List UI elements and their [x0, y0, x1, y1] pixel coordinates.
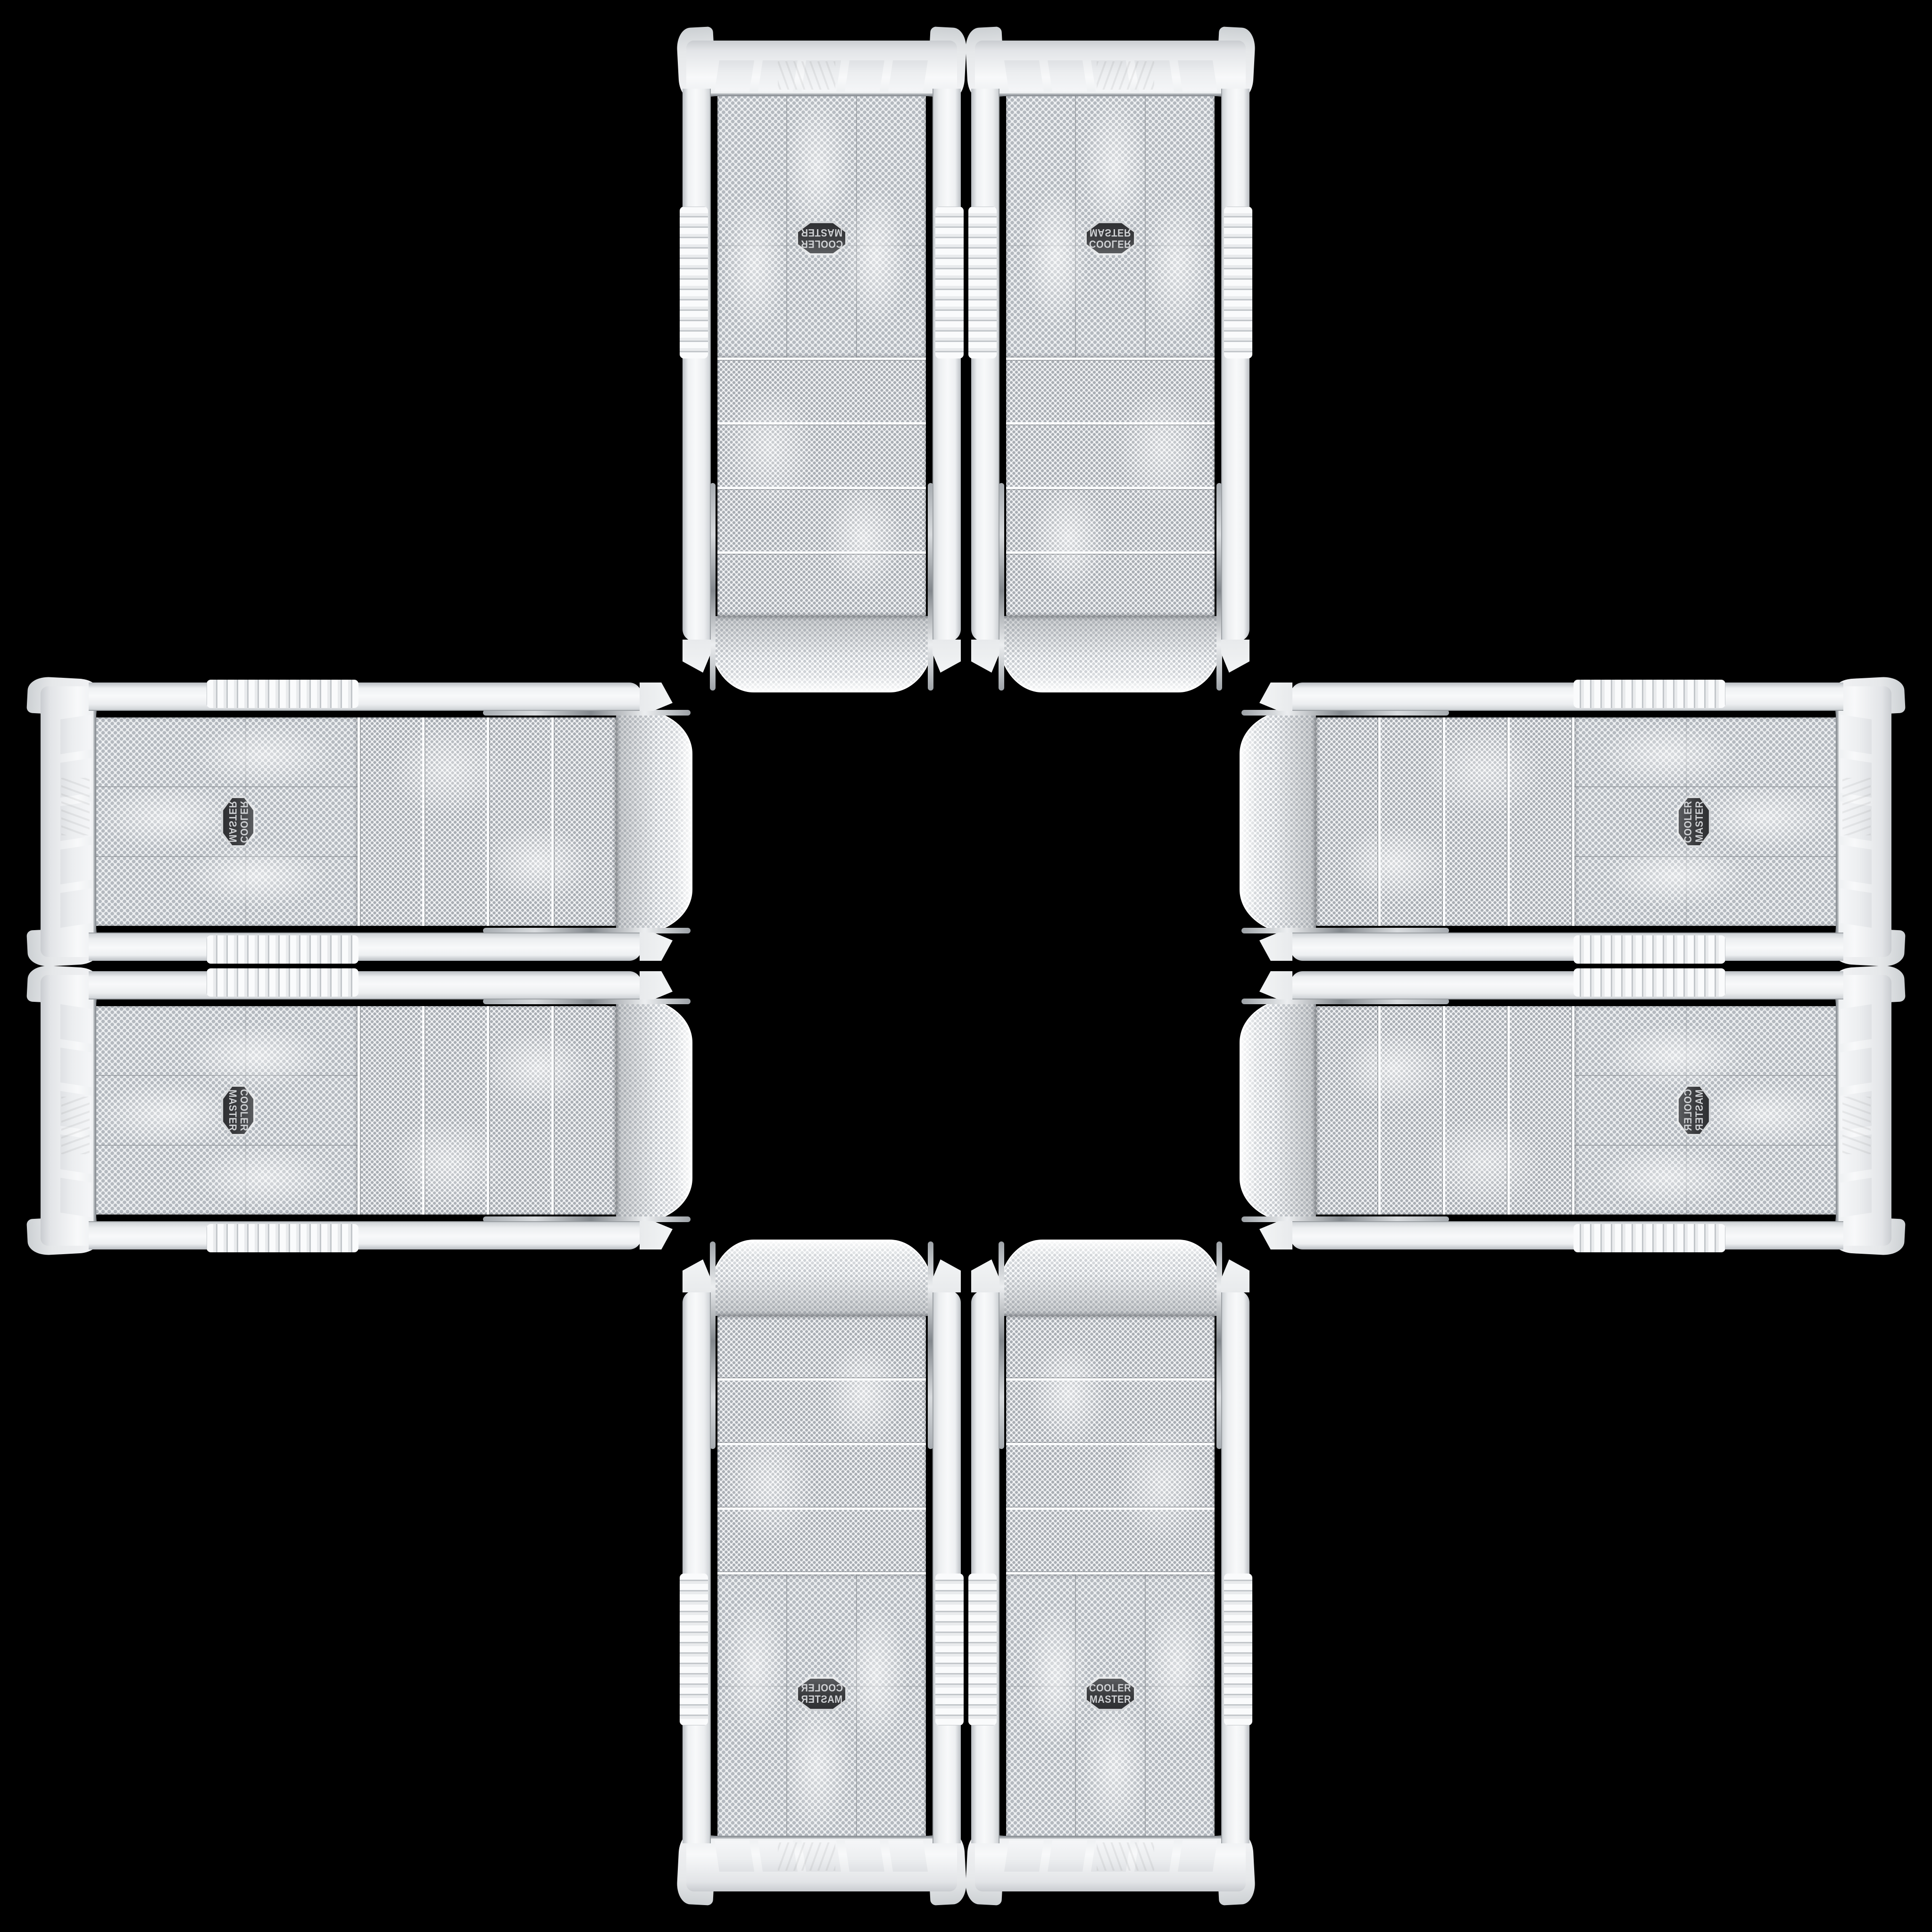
case-rounded-top-mesh-panel — [1240, 998, 1316, 1223]
front-mesh-panel: COOLER MASTER — [717, 1574, 926, 1840]
pc-case-right-top: COOLER MASTER — [1229, 683, 1894, 961]
cap-tab — [60, 715, 92, 754]
cap-tab — [60, 1178, 92, 1217]
badge-text-line1: COOLER — [1682, 800, 1694, 842]
cap-tab — [1004, 1840, 1044, 1872]
pc-case-bottom-left: COOLER MASTER — [683, 1229, 961, 1894]
cooler-master-badge-face: COOLER MASTER — [798, 223, 845, 253]
case-side-rail-left — [971, 1291, 999, 1843]
grip-ribs-right — [1574, 1224, 1725, 1252]
badge-text-line2: MASTER — [227, 1090, 238, 1131]
cap-diagonal-ribs — [1842, 1097, 1871, 1154]
drive-bay-mesh-covers — [717, 1316, 926, 1574]
badge-text-line2: MASTER — [1090, 227, 1131, 238]
cap-tab — [1840, 888, 1872, 928]
cooler-master-badge-face: COOLER MASTER — [1679, 1087, 1709, 1134]
case-end-cap — [686, 41, 957, 93]
cooler-master-badge: COOLER MASTER — [796, 221, 847, 255]
case-side-rail-right — [683, 1291, 711, 1843]
case-side-rail-left — [971, 89, 999, 641]
pc-case-top-right: COOLER MASTER — [971, 38, 1249, 703]
grip-ribs-right — [1224, 1574, 1252, 1725]
cooler-master-badge: COOLER MASTER — [1677, 1085, 1711, 1136]
front-mesh-panel: COOLER MASTER — [1574, 717, 1840, 926]
cap-tab — [60, 888, 92, 928]
case-rounded-top-mesh-panel — [616, 709, 692, 934]
badge-text-line2: MASTER — [1694, 801, 1705, 842]
cap-tab — [845, 1840, 884, 1872]
drive-bay-mesh-covers — [1006, 1316, 1215, 1574]
case-end-cap — [1839, 686, 1891, 957]
cap-tab — [1178, 60, 1217, 92]
case-end-cap — [975, 1839, 1246, 1891]
grip-ribs-left — [968, 1574, 997, 1725]
badge-text-line1: COOLER — [1682, 1089, 1694, 1131]
cap-tab — [715, 1840, 754, 1872]
grip-ribs-right — [1224, 207, 1252, 358]
pc-case-right-bottom: COOLER MASTER — [1229, 971, 1894, 1249]
case-rounded-top-mesh-panel — [709, 1240, 934, 1316]
front-mesh-panel: COOLER MASTER — [92, 717, 358, 926]
grip-ribs-right — [1574, 680, 1725, 708]
front-mesh-panel: COOLER MASTER — [92, 1006, 358, 1215]
cap-tab — [60, 845, 92, 884]
case-side-rail-right — [89, 1221, 641, 1249]
pc-case-left-top: COOLER MASTER — [38, 683, 703, 961]
case-side-rail-right — [1221, 1291, 1249, 1843]
cap-tab — [715, 60, 754, 92]
cap-tab — [888, 60, 928, 92]
case-end-cap — [975, 41, 1246, 93]
cooler-master-badge-face: COOLER MASTER — [1087, 1679, 1134, 1709]
case-end-cap — [686, 1839, 957, 1891]
front-mesh-panel: COOLER MASTER — [1006, 1574, 1215, 1840]
cap-tab — [1004, 60, 1044, 92]
cooler-master-badge: COOLER MASTER — [796, 1677, 847, 1711]
cooler-master-badge-face: COOLER MASTER — [223, 798, 253, 845]
cap-tab — [60, 1048, 92, 1087]
case-side-rail-left — [1291, 971, 1843, 999]
badge-text-line2: MASTER — [801, 227, 842, 238]
case-end-cap — [41, 975, 93, 1246]
case-side-rail-right — [1291, 683, 1843, 711]
grip-ribs-right — [680, 207, 708, 358]
grip-ribs-left — [935, 207, 964, 358]
drive-bay-mesh-covers — [1006, 358, 1215, 616]
cap-diagonal-ribs — [61, 778, 90, 835]
product-collage-canvas: COOLER MASTER — [0, 0, 1932, 1932]
case-side-rail-right — [683, 89, 711, 641]
front-mesh-panel: COOLER MASTER — [1006, 92, 1215, 358]
case-end-cap — [1839, 975, 1891, 1246]
cooler-master-badge: COOLER MASTER — [1677, 796, 1711, 847]
grip-ribs-left — [1574, 935, 1725, 964]
cap-tab — [1840, 715, 1872, 754]
front-mesh-panel: COOLER MASTER — [717, 92, 926, 358]
badge-text-line1: COOLER — [800, 1682, 842, 1694]
grip-ribs-left — [207, 968, 358, 997]
grip-ribs-left — [968, 207, 997, 358]
drive-bay-mesh-covers — [717, 358, 926, 616]
cap-diagonal-ribs — [61, 1097, 90, 1154]
cap-tab — [1840, 845, 1872, 884]
pc-case-left-bottom: COOLER MASTER — [38, 971, 703, 1249]
cooler-master-badge-face: COOLER MASTER — [1679, 798, 1709, 845]
case-side-rail-left — [1291, 933, 1843, 961]
drive-bay-mesh-covers — [1316, 717, 1574, 926]
case-rounded-top-mesh-panel — [998, 1240, 1223, 1316]
cap-diagonal-ribs — [1097, 1842, 1154, 1871]
grip-ribs-right — [680, 1574, 708, 1725]
cooler-master-badge: COOLER MASTER — [221, 1085, 255, 1136]
grip-ribs-left — [1574, 968, 1725, 997]
cap-tab — [60, 1004, 92, 1044]
badge-text-line2: MASTER — [1090, 1694, 1131, 1705]
drive-bay-mesh-covers — [358, 1006, 616, 1215]
drive-bay-mesh-covers — [358, 717, 616, 926]
cap-tab — [1048, 60, 1087, 92]
badge-text-line1: COOLER — [238, 800, 250, 842]
badge-text-line1: COOLER — [1089, 1682, 1131, 1694]
cap-tab — [1178, 1840, 1217, 1872]
cap-diagonal-ribs — [778, 61, 835, 90]
grip-ribs-left — [207, 935, 358, 964]
case-side-rail-right — [1221, 89, 1249, 641]
badge-text-line2: MASTER — [227, 801, 238, 842]
case-side-rail-left — [89, 933, 641, 961]
grip-ribs-left — [935, 1574, 964, 1725]
grip-ribs-right — [207, 1224, 358, 1252]
cooler-master-badge-face: COOLER MASTER — [223, 1087, 253, 1134]
case-rounded-top-mesh-panel — [1240, 709, 1316, 934]
pc-case-top-left: COOLER MASTER — [683, 38, 961, 703]
case-side-rail-right — [1291, 1221, 1843, 1249]
badge-text-line1: COOLER — [238, 1089, 250, 1131]
cooler-master-badge-face: COOLER MASTER — [798, 1679, 845, 1709]
case-side-rail-left — [933, 89, 961, 641]
cap-tab — [845, 60, 884, 92]
case-rounded-top-mesh-panel — [998, 616, 1223, 692]
badge-text-line2: MASTER — [1694, 1090, 1705, 1131]
case-rounded-top-mesh-panel — [709, 616, 934, 692]
cooler-master-badge-face: COOLER MASTER — [1087, 223, 1134, 253]
cap-diagonal-ribs — [1097, 61, 1154, 90]
cap-tab — [1840, 1178, 1872, 1217]
case-side-rail-left — [933, 1291, 961, 1843]
cooler-master-badge: COOLER MASTER — [221, 796, 255, 847]
cap-tab — [1840, 1048, 1872, 1087]
cap-tab — [1048, 1840, 1087, 1872]
case-rounded-top-mesh-panel — [616, 998, 692, 1223]
badge-text-line1: COOLER — [1089, 238, 1131, 250]
cooler-master-badge: COOLER MASTER — [1085, 221, 1136, 255]
badge-text-line1: COOLER — [800, 238, 842, 250]
case-side-rail-left — [89, 971, 641, 999]
cap-diagonal-ribs — [778, 1842, 835, 1871]
badge-text-line2: MASTER — [801, 1694, 842, 1705]
case-end-cap — [41, 686, 93, 957]
grip-ribs-right — [207, 680, 358, 708]
front-mesh-panel: COOLER MASTER — [1574, 1006, 1840, 1215]
cap-tab — [888, 1840, 928, 1872]
case-side-rail-right — [89, 683, 641, 711]
cap-tab — [1840, 1004, 1872, 1044]
cap-diagonal-ribs — [1842, 778, 1871, 835]
drive-bay-mesh-covers — [1316, 1006, 1574, 1215]
cooler-master-badge: COOLER MASTER — [1085, 1677, 1136, 1711]
pc-case-bottom-right: COOLER MASTER — [971, 1229, 1249, 1894]
